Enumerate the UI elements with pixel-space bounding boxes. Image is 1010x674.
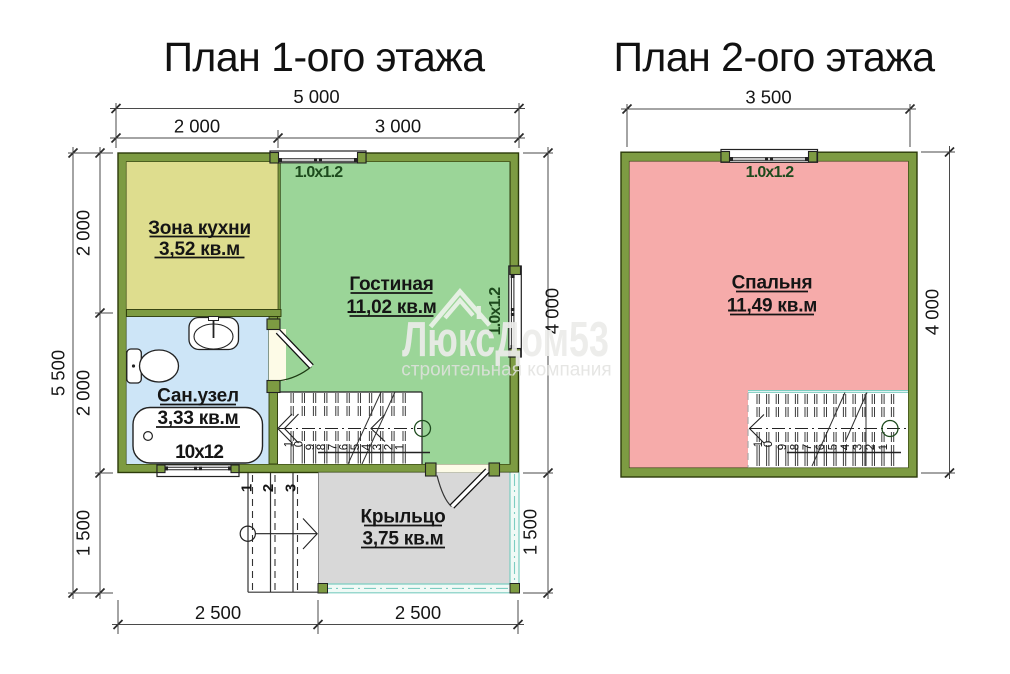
svg-text:1.0х1.2: 1.0х1.2 <box>746 164 795 181</box>
svg-text:2 500: 2 500 <box>195 602 241 623</box>
svg-text:5: 5 <box>350 444 362 450</box>
svg-text:3 500: 3 500 <box>745 87 791 108</box>
svg-text:0: 0 <box>763 441 775 447</box>
svg-text:0: 0 <box>294 441 306 447</box>
svg-text:2: 2 <box>383 444 395 450</box>
svg-text:1 500: 1 500 <box>73 510 94 556</box>
svg-text:2 500: 2 500 <box>395 602 441 623</box>
svg-text:7: 7 <box>802 444 814 450</box>
svg-text:2 000: 2 000 <box>73 370 94 416</box>
svg-text:4: 4 <box>361 443 373 450</box>
svg-text:Спальня: Спальня <box>732 273 813 294</box>
svg-text:План 2-ого этажа: План 2-ого этажа <box>613 34 935 80</box>
svg-text:3,75 кв.м: 3,75 кв.м <box>363 529 444 550</box>
svg-text:8: 8 <box>316 444 328 450</box>
svg-text:4: 4 <box>840 443 852 450</box>
svg-text:9: 9 <box>777 444 789 450</box>
svg-text:3: 3 <box>372 444 384 450</box>
svg-text:11,49 кв.м: 11,49 кв.м <box>727 296 817 317</box>
svg-text:2 000: 2 000 <box>174 116 220 137</box>
svg-text:Крыльцо: Крыльцо <box>360 507 445 528</box>
svg-text:8: 8 <box>790 444 802 450</box>
svg-text:4 000: 4 000 <box>922 289 943 335</box>
svg-text:7: 7 <box>327 444 339 450</box>
svg-text:строительная компания: строительная компания <box>401 360 611 381</box>
svg-text:1: 1 <box>239 484 256 492</box>
svg-text:3 000: 3 000 <box>375 116 421 137</box>
svg-text:3,33 кв.м: 3,33 кв.м <box>158 408 239 429</box>
svg-text:1: 1 <box>395 444 407 450</box>
svg-text:План 1-ого этажа: План 1-ого этажа <box>163 34 485 80</box>
svg-text:1.0х1.2: 1.0х1.2 <box>295 164 344 181</box>
svg-text:6: 6 <box>339 444 351 450</box>
svg-text:1 500: 1 500 <box>520 509 541 555</box>
svg-text:2 000: 2 000 <box>73 210 94 256</box>
svg-text:5 500: 5 500 <box>48 350 69 396</box>
svg-text:5: 5 <box>827 444 839 450</box>
svg-text:6: 6 <box>815 444 827 450</box>
svg-text:Сан.узел: Сан.узел <box>157 386 239 407</box>
svg-text:3: 3 <box>853 444 865 450</box>
svg-text:1: 1 <box>878 444 890 450</box>
svg-text:9: 9 <box>305 444 317 450</box>
svg-text:5 000: 5 000 <box>293 86 339 107</box>
svg-text:2: 2 <box>865 444 877 450</box>
svg-text:10х12: 10х12 <box>175 442 223 463</box>
svg-text:2: 2 <box>260 484 277 492</box>
svg-text:3: 3 <box>283 484 300 492</box>
svg-text:Гостиная: Гостиная <box>349 274 433 295</box>
